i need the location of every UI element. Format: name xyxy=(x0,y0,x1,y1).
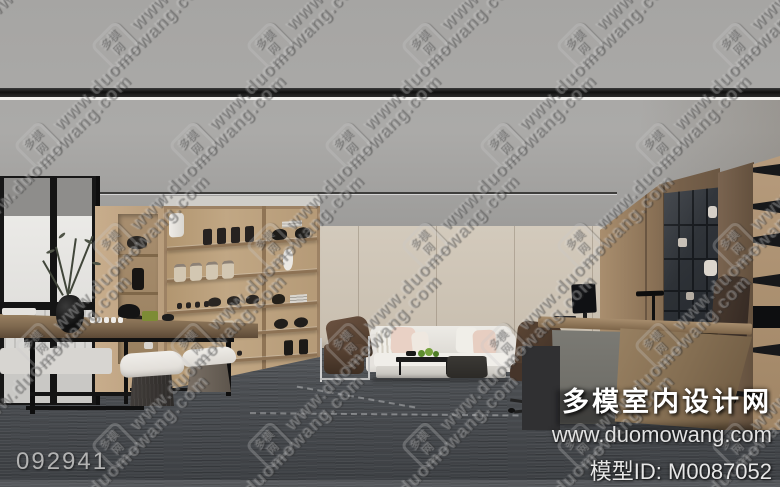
monitor-screen xyxy=(571,283,596,313)
plant-vase xyxy=(56,295,84,333)
armchair-chrome-rail xyxy=(320,378,370,380)
dark-decor-item xyxy=(406,351,416,356)
fruit-green xyxy=(418,350,425,357)
armchair-seat xyxy=(324,344,364,374)
photo-code: 092941 xyxy=(16,448,108,476)
bench-base-tapered xyxy=(187,362,231,392)
decor-teapot xyxy=(127,236,147,249)
black-teapot xyxy=(118,304,140,318)
teacup xyxy=(97,317,102,323)
decor-teapot xyxy=(295,227,310,239)
decor-small-cup xyxy=(186,302,191,308)
bench-base xyxy=(130,374,174,406)
teacup xyxy=(104,317,109,323)
coffee-table-top xyxy=(396,357,452,362)
tea-caddy-green xyxy=(142,311,158,321)
frame-rail xyxy=(24,338,234,342)
decor-kettle xyxy=(294,317,308,328)
decor-bottle xyxy=(132,268,144,290)
brand-model-id-value: M0087052 xyxy=(668,459,772,484)
frame-leg xyxy=(30,340,35,414)
decor-bottle xyxy=(231,227,240,244)
plant-leaf xyxy=(92,261,101,266)
fruit-green xyxy=(425,348,433,356)
brand-site-url: www.duomowang.com xyxy=(552,422,772,448)
decor-teapot xyxy=(246,294,259,304)
window-pane-top xyxy=(4,178,92,216)
decor-kettle xyxy=(274,318,288,329)
decor-tan-jar xyxy=(206,261,218,280)
decor-white-jar xyxy=(169,213,184,238)
lamp-pole xyxy=(652,295,655,323)
bookshelf-niche xyxy=(753,200,780,213)
decor-bottle xyxy=(217,228,226,245)
ceiling-slot-glow xyxy=(85,194,617,195)
decor-teapot xyxy=(208,297,221,307)
tea-tray xyxy=(2,308,36,315)
decor-jar-row xyxy=(174,260,234,282)
decor-white-vase xyxy=(283,249,293,271)
brand-model-id-label: 模型ID: xyxy=(590,459,662,484)
teacup xyxy=(90,317,95,323)
bookshelf-niche xyxy=(753,233,780,247)
render-canvas: 多模 网 www.duomowang.com 多模 网 www.duomowan… xyxy=(0,0,780,487)
decor-small-cup xyxy=(195,301,200,307)
bench-cushion xyxy=(119,350,185,378)
coffee-table-leg xyxy=(399,362,401,375)
decor-tan-jar xyxy=(222,260,234,279)
ceiling-beam-light-strip xyxy=(0,97,780,100)
lamp-arm xyxy=(636,291,664,297)
ceiling-beam xyxy=(0,88,780,97)
shelf-divider-vertical xyxy=(262,199,266,395)
armchair xyxy=(316,316,378,386)
brand-model-id: 模型ID: M0087052 xyxy=(552,454,772,486)
brand-site-name: 多模室内设计网 xyxy=(552,380,772,419)
decor-small-cup xyxy=(237,351,242,356)
decor-teapot xyxy=(272,228,287,240)
decor-bottle xyxy=(203,229,212,246)
armchair-chrome-leg xyxy=(368,336,370,380)
decor-bottle-pair xyxy=(284,339,308,356)
decor-plate-stack xyxy=(290,294,307,303)
chair-caster xyxy=(508,408,515,413)
decor-bottle xyxy=(299,339,308,355)
sofa-shadow xyxy=(372,377,510,382)
niche-shelf xyxy=(118,254,158,257)
decor-bottle xyxy=(284,340,293,356)
teacup xyxy=(111,317,116,323)
decor-bottle xyxy=(245,226,254,243)
decor-small-cup-row xyxy=(177,301,209,309)
plant-leaf xyxy=(58,232,66,239)
decor-tan-jar xyxy=(174,263,186,282)
coffee-table xyxy=(396,348,454,376)
decor-small-cup xyxy=(177,303,182,309)
shelf-unit-light-cove xyxy=(164,196,320,207)
decor-tan-jar xyxy=(190,262,202,281)
teacup-row xyxy=(90,317,123,323)
decor-teapot xyxy=(227,296,240,306)
bookshelf-niche xyxy=(753,164,780,176)
niche-shelf xyxy=(118,292,158,295)
ottoman xyxy=(446,356,488,378)
frame-rail xyxy=(26,406,144,410)
decor-teapot xyxy=(272,294,285,305)
black-bowl xyxy=(162,314,174,321)
armchair-chrome-leg xyxy=(320,338,322,382)
plant-leaf xyxy=(46,249,55,255)
brand-block: 多模室内设计网 www.duomowang.com 模型ID: M0087052 xyxy=(552,380,772,486)
